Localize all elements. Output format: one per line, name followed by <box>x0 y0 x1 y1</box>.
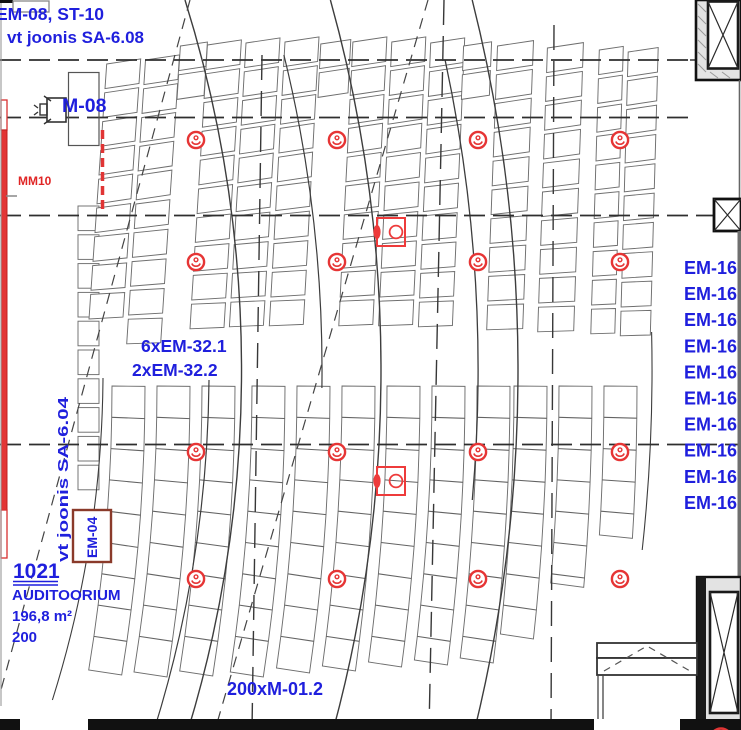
svg-text:MM10: MM10 <box>18 174 52 188</box>
svg-text:1021: 1021 <box>13 560 60 583</box>
svg-text:EM-16: EM-16 <box>684 258 737 278</box>
svg-text:EM-16: EM-16 <box>684 336 737 356</box>
svg-text:200xM-01.2: 200xM-01.2 <box>227 679 323 699</box>
svg-text:EM-08, ST-10: EM-08, ST-10 <box>0 4 104 24</box>
svg-text:EM-16: EM-16 <box>684 362 737 382</box>
svg-text:196,8 m²: 196,8 m² <box>12 608 72 625</box>
svg-text:EM-16: EM-16 <box>684 467 737 487</box>
svg-text:EM-16: EM-16 <box>684 310 737 330</box>
svg-text:EM-16: EM-16 <box>684 284 737 304</box>
svg-text:EM-16: EM-16 <box>684 415 737 435</box>
svg-text:AUDITOORIUM: AUDITOORIUM <box>12 587 121 604</box>
svg-text:EM-16: EM-16 <box>684 389 737 409</box>
svg-text:EM-16: EM-16 <box>684 441 737 461</box>
svg-text:vt joonis SA-6.08: vt joonis SA-6.08 <box>7 28 144 47</box>
svg-text:6xEM-32.1: 6xEM-32.1 <box>141 336 227 356</box>
svg-text:EM-04: EM-04 <box>84 517 100 558</box>
svg-text:vt joonis SA-6.04: vt joonis SA-6.04 <box>55 396 72 562</box>
svg-text:200: 200 <box>12 629 37 646</box>
svg-text:M-08: M-08 <box>62 95 107 117</box>
svg-text:2xEM-32.2: 2xEM-32.2 <box>132 360 218 380</box>
svg-text:EM-16: EM-16 <box>684 493 737 513</box>
